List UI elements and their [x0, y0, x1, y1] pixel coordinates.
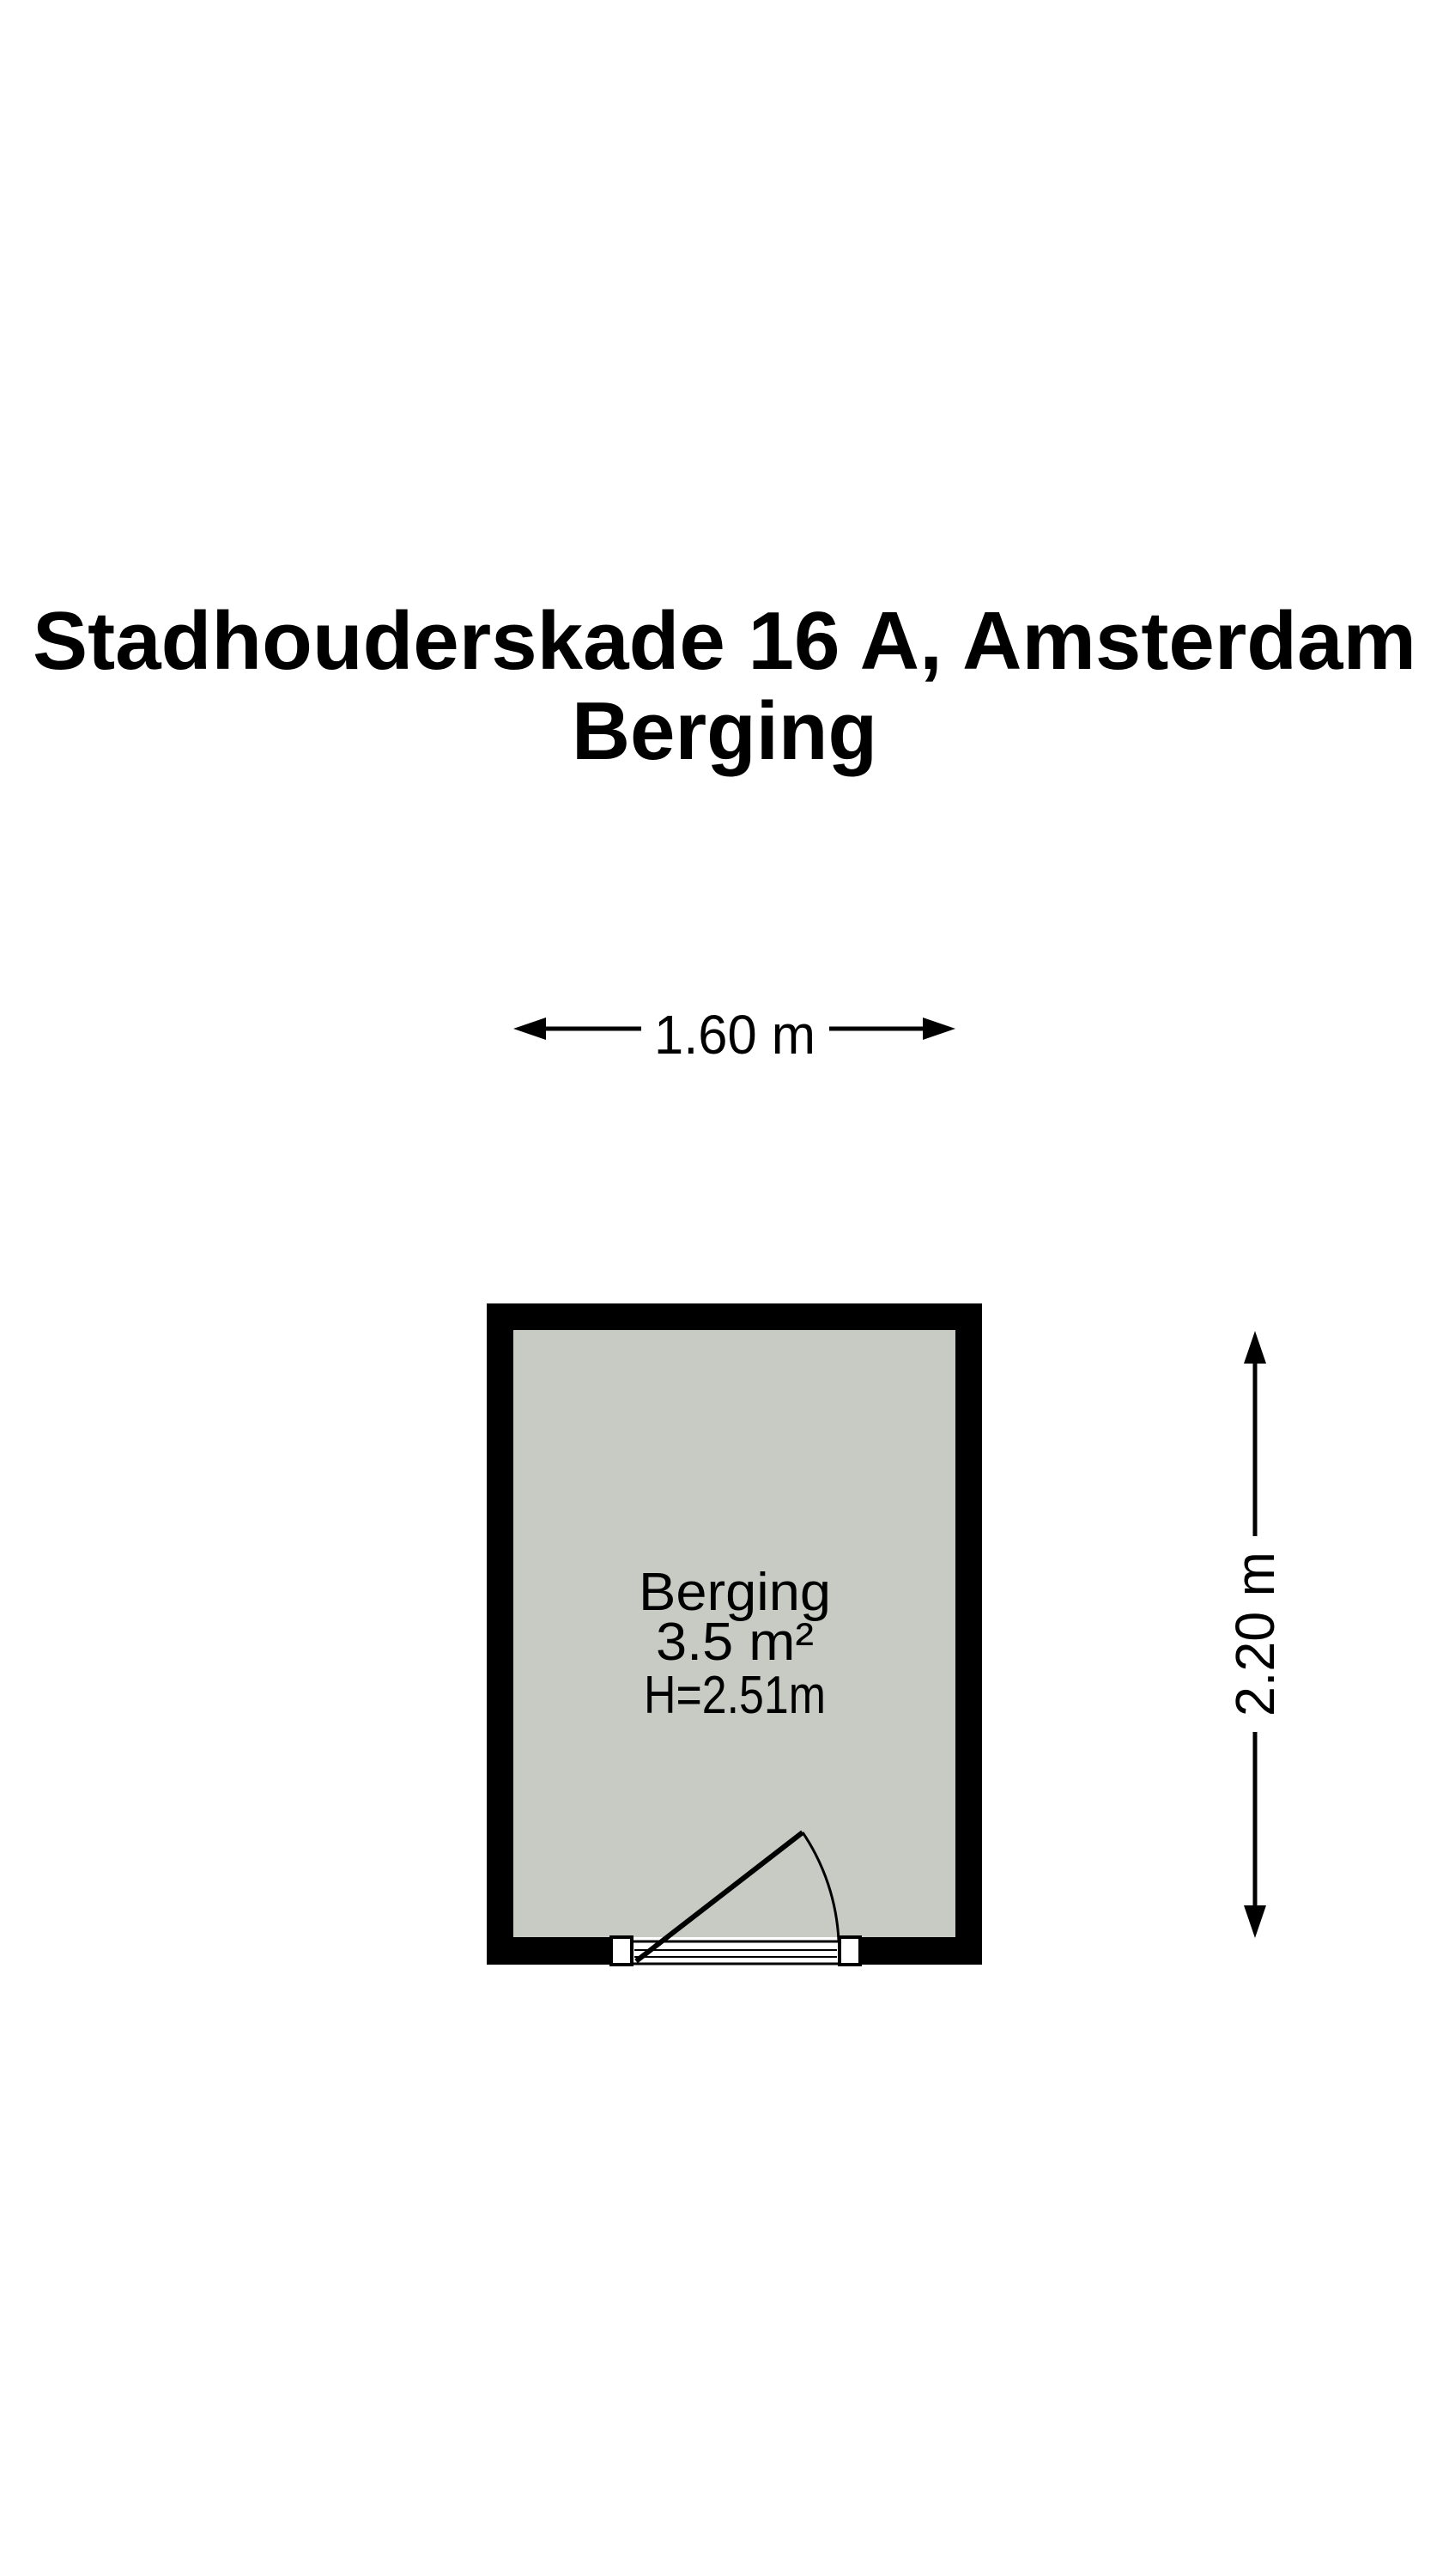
width-dimension: 1.60 m	[513, 1004, 955, 1066]
width-dimension-label: 1.60 m	[654, 1004, 815, 1066]
room-area-label: 3.5 m²	[656, 1613, 814, 1672]
height-dimension: 2.20 m	[1224, 1331, 1286, 1938]
arrowhead-right-icon	[923, 1018, 955, 1040]
door-right-post	[840, 1937, 860, 1965]
arrowhead-up-icon	[1244, 1331, 1266, 1364]
room-ceiling-height-label: H=2.51m	[644, 1666, 826, 1725]
door-threshold	[632, 1941, 840, 1964]
floorplan-drawing: Stadhouderskade 16 A, Amsterdam Berging …	[0, 0, 1449, 2576]
page-title-room: Berging	[572, 685, 877, 777]
page-title-address: Stadhouderskade 16 A, Amsterdam	[33, 595, 1416, 687]
arrowhead-down-icon	[1244, 1905, 1266, 1938]
floorplan-page: Stadhouderskade 16 A, Amsterdam Berging …	[0, 0, 1449, 2576]
height-dimension-label: 2.20 m	[1224, 1552, 1286, 1716]
arrowhead-left-icon	[513, 1018, 546, 1040]
door-left-post	[611, 1937, 632, 1965]
